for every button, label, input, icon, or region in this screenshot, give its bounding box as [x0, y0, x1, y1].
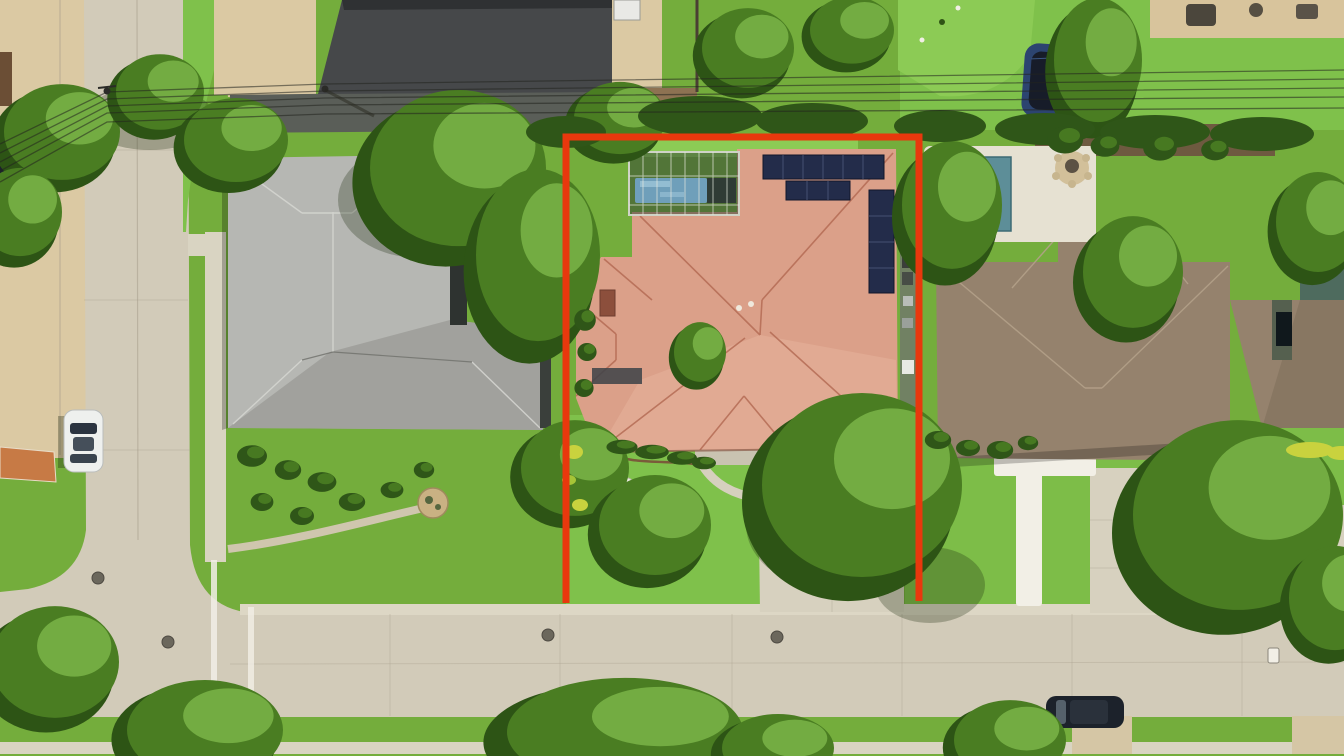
pool-enclosure — [629, 152, 739, 215]
rear-window — [70, 454, 97, 463]
utility-pole — [104, 88, 111, 95]
yellow-plant — [572, 499, 588, 511]
bush — [1018, 436, 1038, 450]
bush — [1143, 135, 1177, 160]
bush — [577, 343, 596, 361]
median-tan-strip — [214, 0, 232, 95]
bush — [956, 440, 980, 456]
bush — [574, 309, 596, 331]
bush — [251, 493, 274, 511]
bush — [308, 472, 337, 492]
patio-furniture — [1296, 4, 1318, 19]
bush — [925, 431, 951, 449]
bush — [574, 379, 593, 397]
bush — [635, 445, 669, 459]
aerial-photo-canvas — [0, 0, 1344, 756]
bush — [1201, 140, 1229, 161]
low-roof-shadow — [592, 368, 642, 384]
yellow-hedge — [1286, 442, 1334, 458]
sidewalk-stub — [188, 234, 226, 256]
orange-walkway — [0, 447, 56, 482]
car-white-left-street — [58, 410, 103, 472]
patio-furniture — [1249, 3, 1263, 17]
water-sparkle — [640, 181, 670, 187]
water-sparkle — [660, 192, 684, 197]
trash-bin — [902, 272, 913, 285]
aerial-photo — [0, 0, 1344, 756]
mailbox — [1268, 648, 1279, 663]
stone-circle-plant — [425, 496, 433, 504]
patio-furniture — [1186, 4, 1216, 26]
solar-array-north-row2 — [786, 181, 850, 200]
bush — [692, 457, 716, 470]
brown-wall — [0, 52, 12, 106]
roof-vent — [748, 301, 754, 307]
ac-unit — [902, 318, 913, 328]
bush — [275, 460, 301, 480]
bush — [606, 440, 637, 454]
dark-glass-panes — [707, 178, 736, 203]
bush — [1091, 135, 1120, 157]
windshield — [70, 423, 97, 434]
white-trailer — [614, 0, 640, 20]
bush — [414, 462, 434, 478]
ac-unit — [903, 296, 913, 306]
roof-vent — [736, 305, 742, 311]
bush — [339, 493, 365, 511]
bush — [987, 441, 1013, 459]
pool-equipment-box — [902, 360, 914, 374]
patio-table — [1065, 159, 1079, 173]
bush — [237, 445, 267, 467]
bush — [290, 507, 314, 525]
sunroof — [73, 437, 94, 451]
driveway-apron-3 — [1292, 716, 1344, 754]
stone-circle-plant — [435, 504, 441, 510]
stone-circle-feature — [418, 488, 448, 518]
rear-building-roof — [318, 0, 612, 94]
chimney — [600, 290, 615, 316]
car-roof — [1070, 700, 1108, 724]
courtyard-window — [1276, 312, 1292, 346]
bush — [381, 482, 404, 498]
bush — [1047, 127, 1083, 154]
gray-roof-west-shadow — [222, 158, 228, 430]
